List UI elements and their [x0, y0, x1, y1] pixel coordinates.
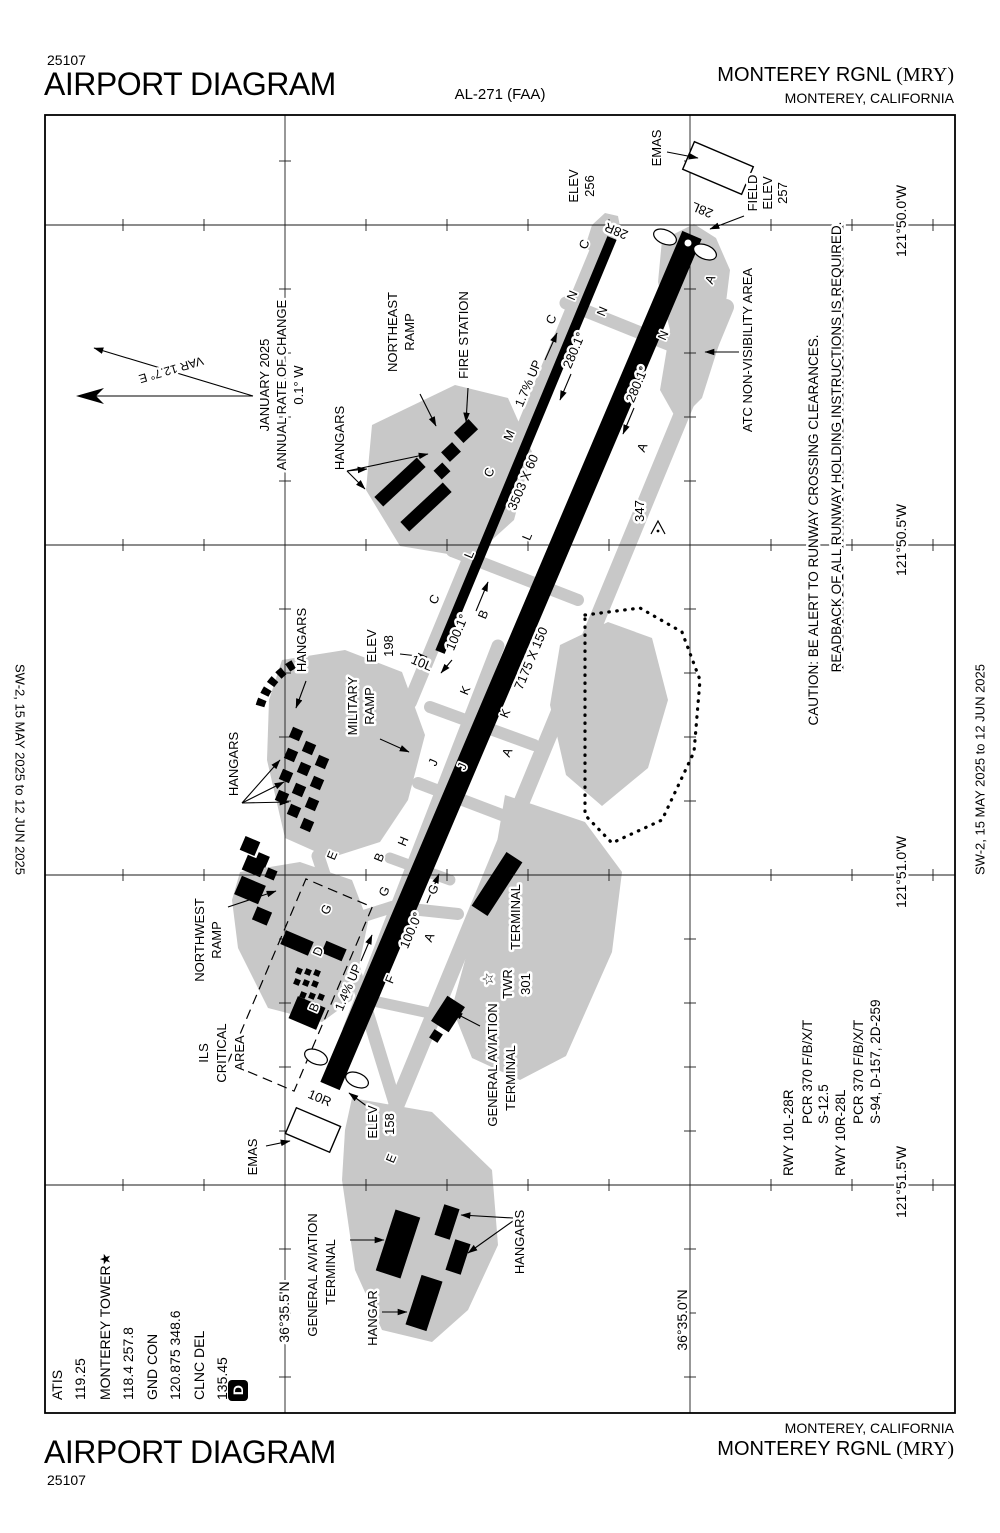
label-ramp: RAMP	[402, 313, 417, 351]
label-121-50-5-w: 121°50.5'W	[893, 503, 909, 576]
label-twr: TWR	[500, 969, 515, 999]
airport-diagram-canvas: EMAS28LFIELDELEV257ELEV25628RATC NON-VIS…	[0, 0, 1000, 1533]
label-198: 198	[381, 635, 396, 657]
taxiway-letter-k: K	[457, 683, 473, 697]
emas-pad	[285, 1108, 340, 1153]
label-caution-be-alert-to-runway-crossin: CAUTION: BE ALERT TO RUNWAY CROSSING CLE…	[806, 334, 821, 725]
label-36-35-0-n: 36°35.0'N	[674, 1289, 690, 1350]
taxiway-letter-l: L	[520, 530, 536, 542]
taxiway-letter-g: G	[376, 884, 393, 898]
taxiway-letter-j: J	[426, 757, 441, 768]
label-120-875-348-6: 120.875 348.6	[167, 1310, 183, 1400]
label-january-2025: JANUARY 2025	[257, 339, 272, 432]
label-256: 256	[582, 175, 597, 197]
holding-pad-ellipse	[302, 1046, 330, 1068]
label-28l: 28L	[689, 199, 715, 221]
label-121-50-0-w: 121°50.0'W	[893, 184, 909, 257]
footer-city: MONTEREY, CALIFORNIA	[785, 1420, 954, 1436]
taxiway-letter-a: A	[499, 745, 515, 759]
chart-border	[45, 115, 955, 1413]
label-ramp: RAMP	[209, 921, 224, 959]
footer-title: AIRPORT DIAGRAM	[44, 1434, 336, 1471]
apron-layer	[232, 213, 730, 1342]
leader-arrow	[476, 582, 488, 611]
chart-code-bottom: 25107	[47, 1472, 86, 1488]
label-var-12-7-e: VAR 12.7° E	[137, 354, 205, 386]
label-347: 347	[632, 500, 647, 522]
label-terminal: TERMINAL	[508, 884, 523, 950]
label-elev: ELEV	[365, 1105, 380, 1139]
label-hangars: HANGARS	[294, 608, 309, 673]
label-northwest: NORTHWEST	[192, 898, 207, 982]
label-hangar: HANGAR	[365, 1290, 380, 1346]
label-301: 301	[518, 973, 533, 995]
label-northeast: NORTHEAST	[385, 292, 400, 372]
taxiway-letter-a: A	[421, 930, 437, 944]
label-clnc-del: CLNC DEL	[191, 1331, 207, 1400]
label-gnd-con: GND CON	[144, 1334, 160, 1400]
label-terminal: TERMINAL	[503, 1045, 518, 1111]
label-atc-non-visibility-area: ATC NON-VISIBILITY AREA	[740, 268, 755, 433]
taxiway-letter-a: A	[634, 440, 650, 454]
label-general-aviation: GENERAL AVIATION	[305, 1213, 320, 1336]
holding-pad-ellipse	[343, 1069, 371, 1091]
graticule-layer	[45, 115, 955, 1413]
label-158: 158	[382, 1113, 397, 1135]
label-elev: ELEV	[566, 169, 581, 203]
label-critical: CRITICAL	[214, 1023, 229, 1082]
label-135-45: 135.45	[214, 1357, 230, 1400]
apron-area	[550, 622, 668, 806]
footer-airport-name: MONTEREY RGNL (MRY)	[717, 1438, 954, 1461]
label-121-51-0-w: 121°51.0'W	[893, 835, 909, 908]
building	[240, 836, 261, 856]
label-s-12-5: S-12.5	[816, 1084, 831, 1124]
label-general-aviation: GENERAL AVIATION	[485, 1003, 500, 1126]
taxiway-letter-c: C	[426, 593, 442, 607]
label-121-51-5-w: 121°51.5'W	[893, 1145, 909, 1218]
label-0-1-w: 0.1° W	[291, 365, 306, 405]
taxiway	[378, 1002, 434, 1014]
label-ramp: RAMP	[362, 687, 377, 725]
taxiway-letter-h: H	[395, 835, 411, 849]
label-10r: 10R	[306, 1086, 334, 1109]
label-terminal: TERMINAL	[323, 1239, 338, 1305]
footer-airport-id: (MRY)	[896, 1438, 954, 1460]
leader-arrow	[710, 216, 744, 229]
label-rwy-10l-28r: RWY 10L-28R	[781, 1089, 796, 1176]
leader-arrow	[560, 374, 571, 400]
label-ils: ILS	[196, 1043, 211, 1063]
datis-symbol-letter: D	[230, 1385, 246, 1395]
taxiway-letter-b: B	[371, 851, 387, 864]
label-annual-rate-of-change: ANNUAL RATE OF CHANGE	[274, 299, 289, 470]
obstruction-dot	[657, 530, 660, 533]
label-36-35-5-n: 36°35.5'N	[276, 1281, 292, 1342]
label-hangars: HANGARS	[226, 732, 241, 797]
leader-arrow	[441, 660, 452, 673]
taxiway-letter-c: C	[543, 313, 559, 327]
label-elev: ELEV	[364, 629, 379, 663]
taxiway-letter-g: G	[425, 882, 442, 896]
label-elev: ELEV	[760, 176, 775, 210]
label-hangars: HANGARS	[332, 406, 347, 471]
leader-arrow	[347, 471, 365, 489]
label-s-94-d-157-2d-259: S-94, D-157, 2D-259	[868, 999, 883, 1124]
label-118-4-257-8: 118.4 257.8	[120, 1327, 136, 1400]
emas-pad	[683, 142, 754, 195]
label-257: 257	[775, 182, 790, 204]
label-fire-station: FIRE STATION	[456, 291, 471, 379]
label-field: FIELD	[745, 175, 760, 212]
label-area: AREA	[232, 1035, 247, 1071]
label-emas: EMAS	[245, 1138, 260, 1175]
label-atis: ATIS	[49, 1370, 65, 1400]
label-monterey-tower: MONTEREY TOWER★	[97, 1253, 113, 1400]
taxiway-letter-k: K	[497, 706, 513, 720]
label-pcr-370-f-b-x-t: PCR 370 F/B/X/T	[800, 1020, 815, 1124]
label-: ☆	[480, 972, 497, 985]
airport-diagram-page: 25107 AIRPORT DIAGRAM AL-271 (FAA) MONTE…	[0, 0, 1000, 1533]
label-emas: EMAS	[649, 129, 664, 166]
label-rwy-10r-28l: RWY 10R-28L	[833, 1089, 848, 1176]
label-pcr-370-f-b-x-t: PCR 370 F/B/X/T	[851, 1020, 866, 1124]
leader-arrow	[266, 1141, 290, 1146]
label-readback-of-all-runway-holding-ins: READBACK OF ALL RUNWAY HOLDING INSTRUCTI…	[829, 222, 844, 673]
runway-threshold-dot	[685, 240, 692, 247]
label-hangars: HANGARS	[512, 1210, 527, 1275]
apron-area	[452, 795, 622, 1080]
label-119-25: 119.25	[72, 1358, 88, 1400]
taxiway-letter-b: B	[475, 608, 491, 621]
label-military: MILITARY	[345, 676, 360, 735]
